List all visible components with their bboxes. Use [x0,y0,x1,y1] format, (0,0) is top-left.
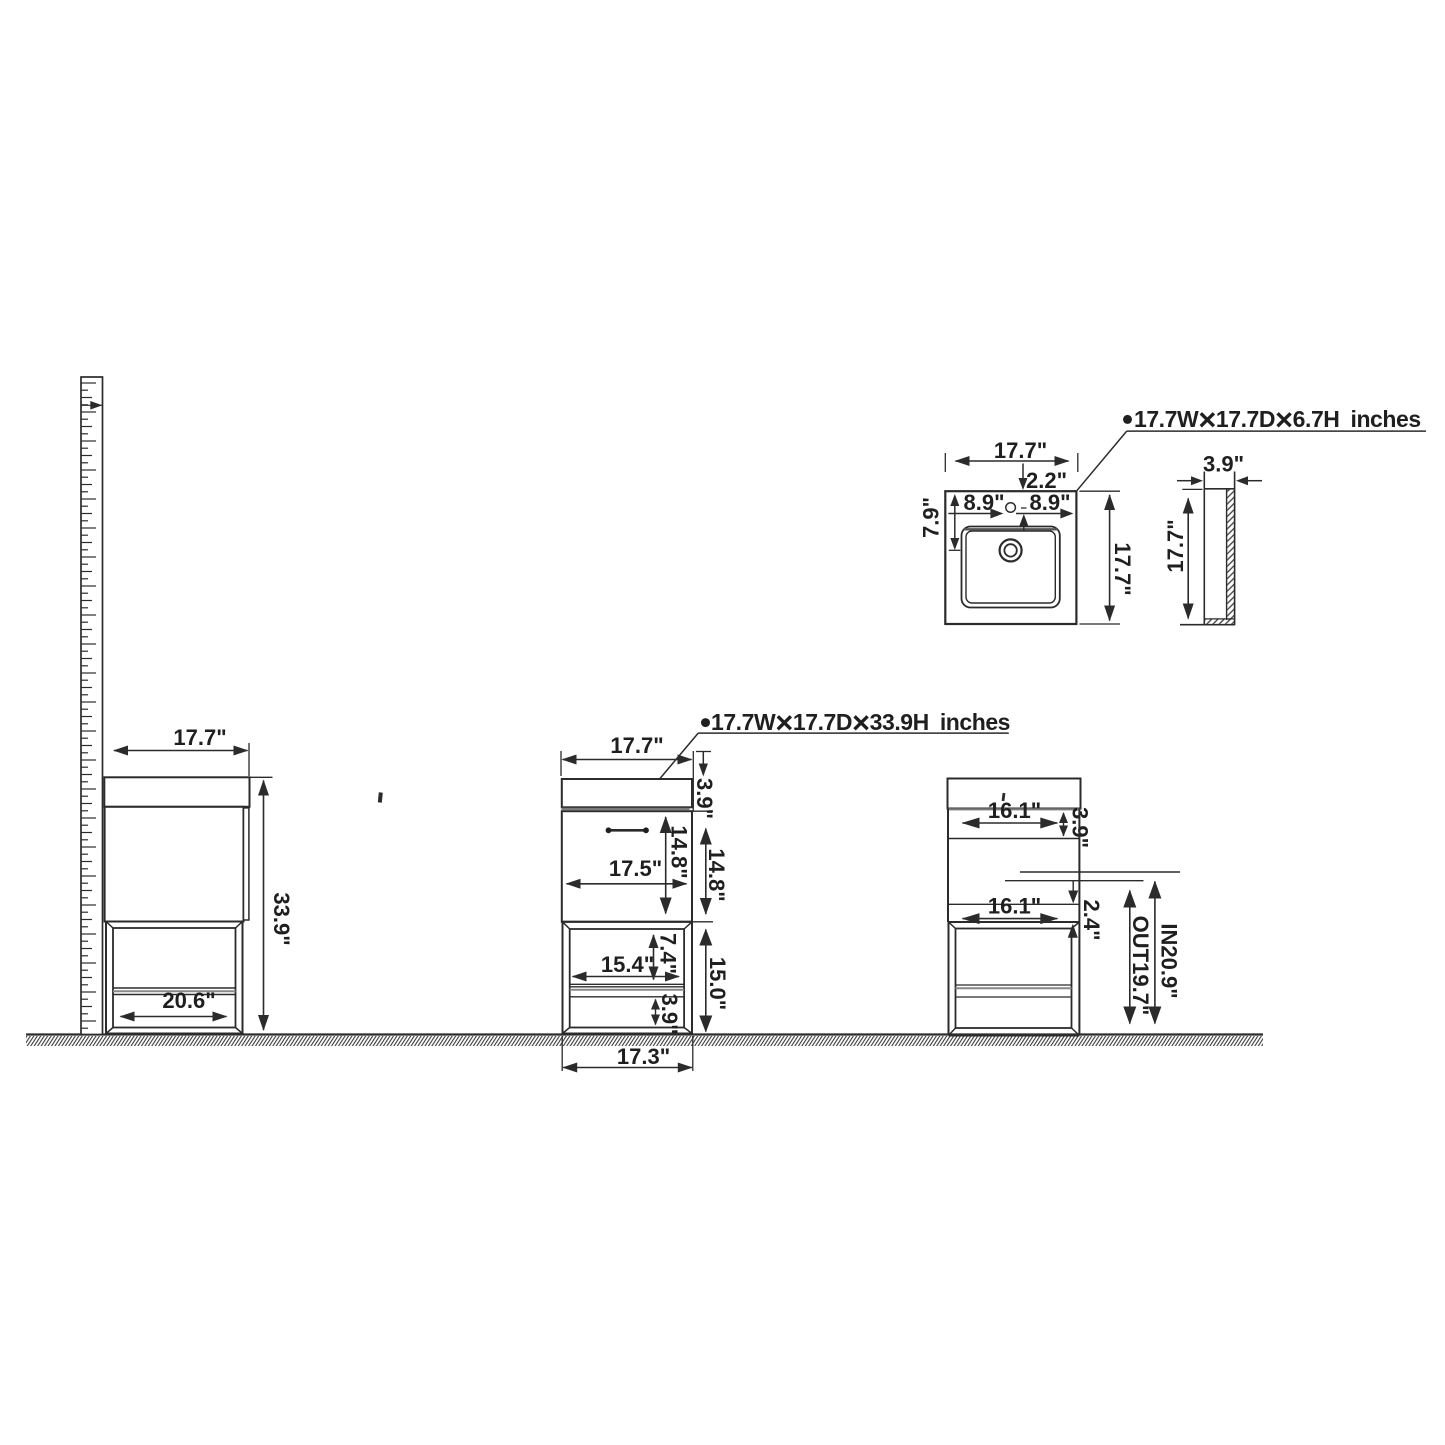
svg-text:14.8": 14.8" [704,848,729,901]
svg-text:15.0": 15.0" [705,957,730,1010]
svg-text:17.7": 17.7" [994,438,1047,463]
svg-text:14.8": 14.8" [667,825,692,878]
svg-text:3.9": 3.9" [1203,452,1244,477]
svg-text:17.3": 17.3" [617,1044,670,1069]
svg-text:17.7": 17.7" [173,725,226,750]
svg-text:16.1": 16.1" [988,798,1041,823]
svg-text:8.9": 8.9" [963,490,1004,515]
svg-text:15.4": 15.4" [601,952,654,977]
svg-text:33.9": 33.9" [269,892,294,945]
svg-text:17.7": 17.7" [1163,519,1188,572]
svg-text:7.9": 7.9" [919,497,944,538]
svg-text:17.7": 17.7" [1110,542,1135,595]
svg-text:2.4": 2.4" [1079,899,1104,940]
svg-text:OUT19.7": OUT19.7" [1128,916,1153,1016]
svg-text:16.1": 16.1" [988,894,1041,919]
svg-text:3.9": 3.9" [692,778,717,819]
svg-text:17.7W×17.7D×33.9H inches: 17.7W×17.7D×33.9H inches [711,705,1010,740]
svg-text:20.6": 20.6" [162,988,215,1013]
svg-text:7.4": 7.4" [656,933,681,974]
svg-text:3.9": 3.9" [657,993,682,1034]
svg-text:17.5": 17.5" [609,856,662,881]
svg-text:17.7": 17.7" [610,733,663,758]
svg-text:IN20.9": IN20.9" [1157,923,1182,998]
svg-text:17.7W×17.7D×6.7H inches: 17.7W×17.7D×6.7H inches [1134,402,1421,437]
